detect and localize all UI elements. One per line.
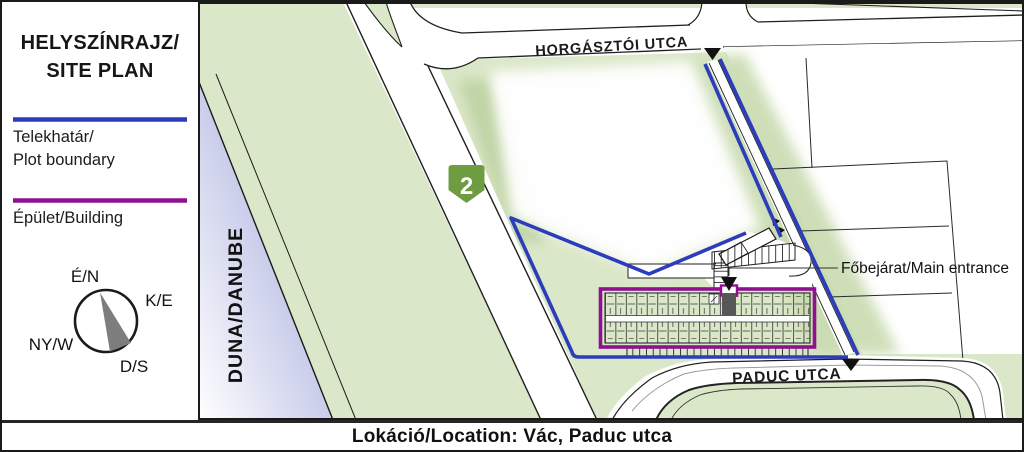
footer-bar: Lokáció/Location: Vác, Paduc utca — [2, 420, 1022, 450]
page-title-line1: HELYSZÍNRAJZ/ — [2, 30, 198, 58]
legend-building-label: Épület/Building — [13, 209, 123, 228]
page-title-line2: SITE PLAN — [2, 58, 198, 86]
page-title: HELYSZÍNRAJZ/ SITE PLAN — [2, 30, 198, 85]
route-2-shield-number: 2 — [460, 173, 473, 200]
legend-plot-label-line2: Plot boundary — [13, 151, 115, 170]
site-plan-map: 2 HORGÁSZTÓI UTCA PADUC UTCA DUNA/DANUBE… — [198, 2, 1024, 420]
compass: É/N K/E NY/W D/S — [2, 240, 198, 420]
compass-label-south: D/S — [120, 357, 148, 376]
building — [601, 286, 815, 348]
side-street-surface — [702, 2, 747, 29]
building-corridor — [606, 316, 809, 323]
location-label: Lokáció/Location: Vác, Paduc utca — [352, 426, 672, 448]
legend-plot-swatch — [13, 117, 187, 122]
compass-label-north: É/N — [71, 267, 99, 286]
main-entrance-label: Főbejárat/Main entrance — [841, 260, 1009, 277]
legend-plot-label-line1: Telekhatár/ — [13, 128, 94, 147]
legend-building-swatch — [13, 198, 187, 203]
river-label: DUNA/DANUBE — [225, 227, 247, 383]
info-panel: HELYSZÍNRAJZ/ SITE PLAN Telekhatár/ Plot… — [2, 2, 200, 420]
building-stairwell-block — [722, 293, 736, 315]
site-plan-page: HELYSZÍNRAJZ/ SITE PLAN Telekhatár/ Plot… — [0, 0, 1024, 452]
compass-label-west: NY/W — [29, 335, 73, 354]
compass-label-east: K/E — [145, 291, 172, 310]
